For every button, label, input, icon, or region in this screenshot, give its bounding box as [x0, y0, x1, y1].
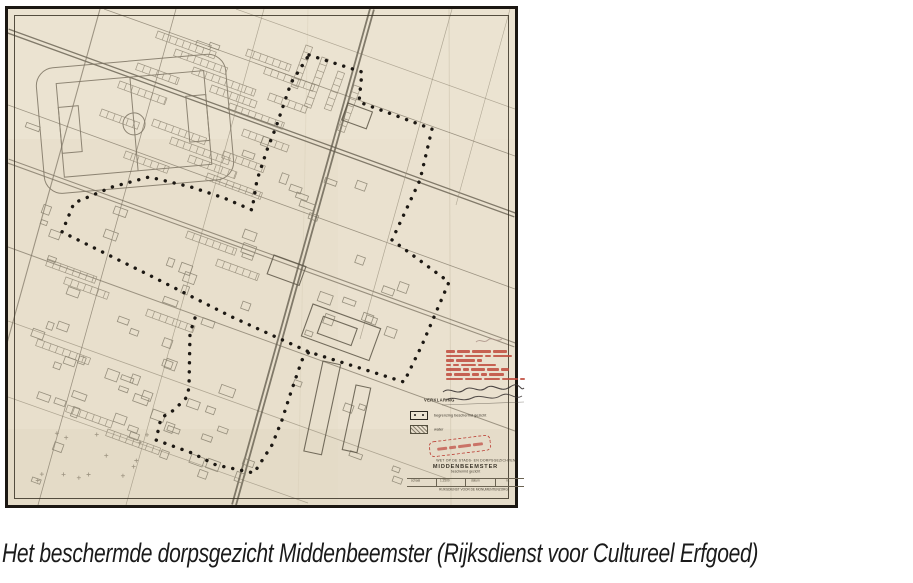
legend-label: begrenzing beschermd gezicht — [434, 413, 486, 417]
legend-label: water — [434, 427, 443, 431]
figure-caption: Het beschermde dorpsgezicht Middenbeemst… — [2, 538, 710, 569]
title-block-table: schaal 1:2500 datum nr. — [407, 478, 524, 487]
hatched-area-symbol — [410, 425, 428, 434]
title-block-footer: RIJKSDIENST VOOR DE MONUMENTENZORG — [439, 488, 492, 491]
legend-item-boundary: begrenzing beschermd gezicht — [410, 409, 520, 421]
legend-heading: VERKLARING — [424, 398, 474, 403]
map-scan: VERKLARING begrenzing beschermd gezicht … — [5, 6, 518, 508]
stamp-text-illegible — [446, 350, 526, 380]
approval-stamp — [446, 350, 526, 400]
legend: VERKLARING begrenzing beschermd gezicht … — [410, 398, 520, 435]
legend-item-water: water — [410, 423, 520, 435]
title-block-header: WET OP DE STADS- EN DORPSGEZICHTEN — [436, 459, 495, 463]
title-block: WET OP DE STADS- EN DORPSGEZICHTEN MIDDE… — [407, 459, 524, 495]
dotted-boundary-symbol — [410, 411, 428, 420]
document-page: VERKLARING begrenzing beschermd gezicht … — [0, 0, 913, 583]
map-subtitle: beschermd gezicht — [436, 470, 495, 474]
map-title: MIDDENBEEMSTER — [429, 463, 502, 469]
